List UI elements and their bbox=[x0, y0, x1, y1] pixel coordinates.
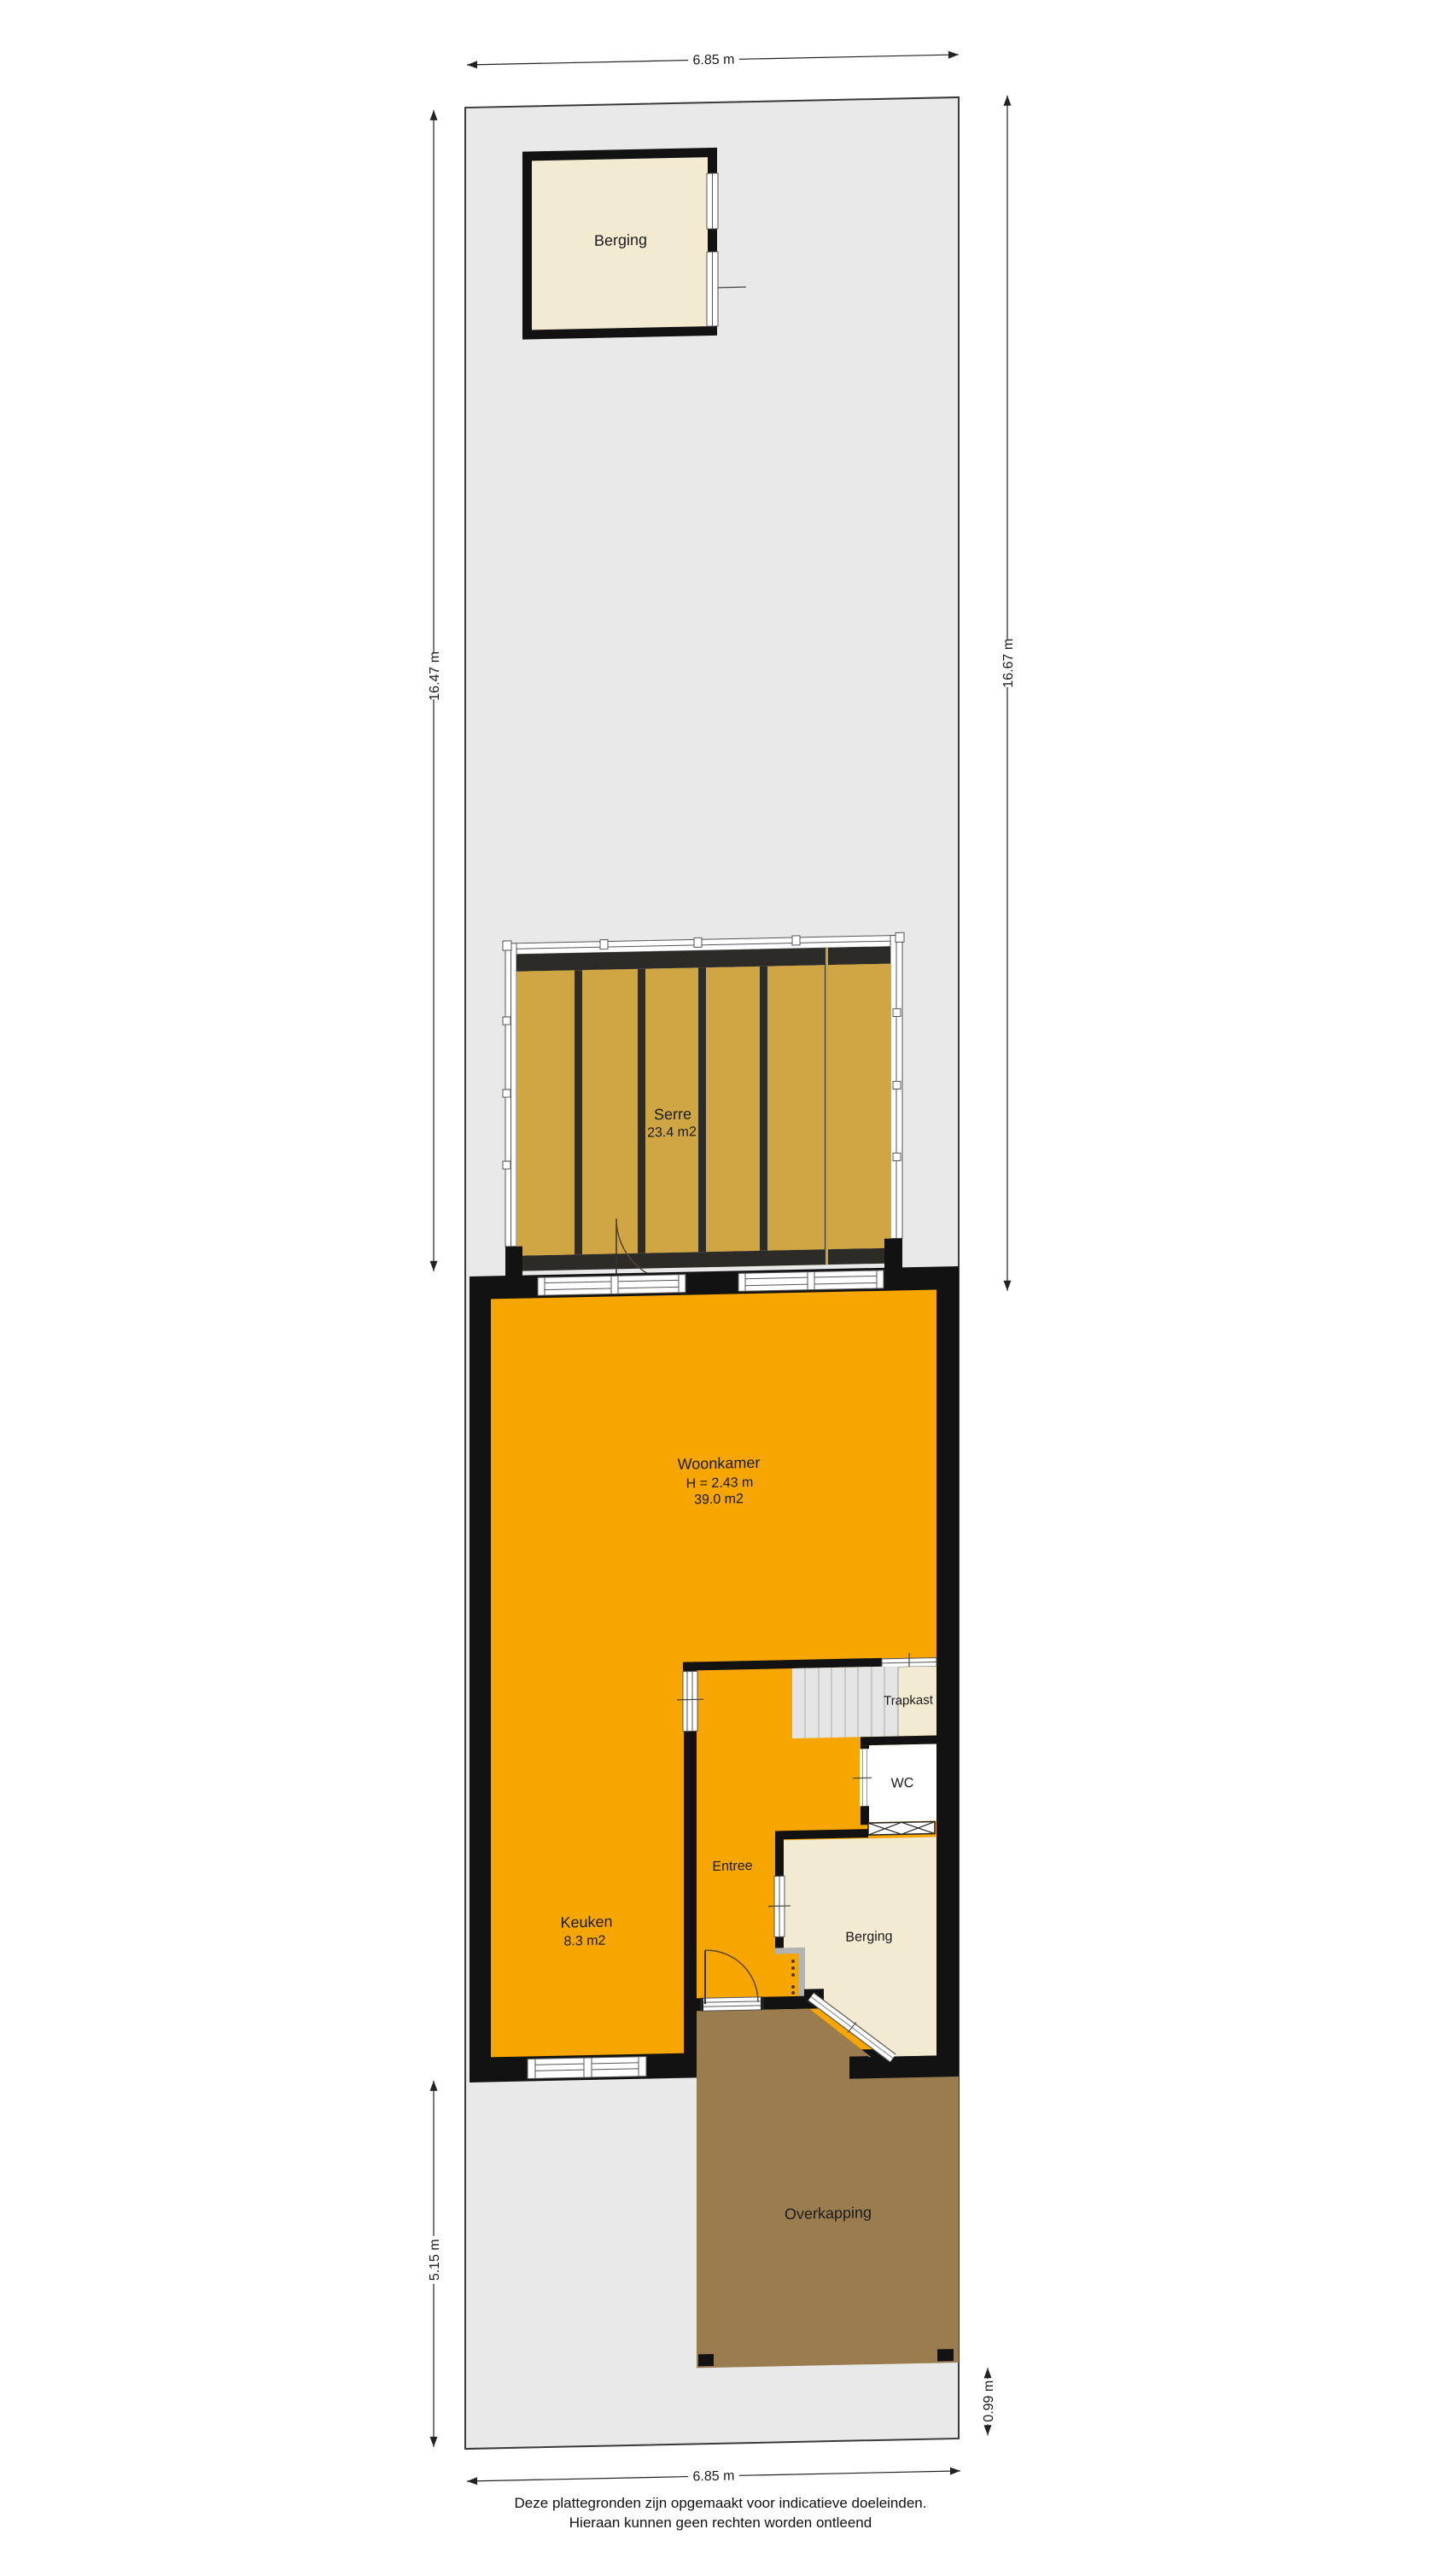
dim-top: 6.85 m bbox=[693, 52, 735, 67]
terrace-post-right bbox=[937, 2349, 954, 2361]
label-serre: Serre bbox=[654, 1106, 691, 1124]
meter-hatch bbox=[868, 1822, 935, 1836]
wc-top-wall bbox=[861, 1735, 936, 1745]
label-keuken-area: 8.3 m2 bbox=[564, 1934, 606, 1949]
serre-post-left bbox=[505, 1247, 522, 1276]
kitchen-window bbox=[528, 2057, 646, 2079]
floor-plan-svg: Berging Serre 23.4 m2 Woonkamer H = 2.43… bbox=[0, 0, 1441, 2576]
shed-door-leaf bbox=[718, 287, 746, 288]
label-overkapping: Overkapping bbox=[785, 2204, 872, 2223]
label-serre-area: 23.4 m2 bbox=[647, 1124, 697, 1140]
disclaimer: Deze plattegronden zijn opgemaakt voor i… bbox=[0, 2493, 1441, 2532]
label-inner-berging: Berging bbox=[845, 1930, 892, 1945]
dim-path: 0.99 m bbox=[982, 2380, 996, 2422]
label-woonkamer: Woonkamer bbox=[678, 1454, 761, 1473]
serre-post-right bbox=[884, 1238, 902, 1268]
dim-right: 16.67 m bbox=[1001, 639, 1016, 688]
terrace-post-left bbox=[698, 2354, 714, 2366]
dim-bottom: 6.85 m bbox=[693, 2468, 735, 2484]
label-wc: WC bbox=[891, 1776, 914, 1791]
dim-left: 16.47 m bbox=[428, 651, 442, 701]
diagonal-post bbox=[849, 2056, 868, 2078]
dim-garden: 5.15 m bbox=[428, 2239, 442, 2281]
label-woonkamer-area: 39.0 m2 bbox=[694, 1492, 744, 1507]
label-trapkast: Trapkast bbox=[884, 1693, 934, 1709]
disclaimer-line2: Hieraan kunnen geen rechten worden ontle… bbox=[0, 2513, 1441, 2532]
serre bbox=[503, 932, 904, 1286]
label-entree: Entree bbox=[712, 1859, 752, 1874]
meter-cabinet bbox=[775, 1948, 805, 2003]
label-garden-shed: Berging bbox=[594, 231, 647, 249]
label-woonkamer-height: H = 2.43 m bbox=[686, 1475, 754, 1492]
serre-divider bbox=[826, 948, 828, 1265]
label-keuken: Keuken bbox=[560, 1913, 612, 1931]
floor-plan: Berging Serre 23.4 m2 Woonkamer H = 2.43… bbox=[0, 0, 1441, 2576]
kitchen-wall-window bbox=[683, 1671, 697, 1731]
disclaimer-line1: Deze plattegronden zijn opgemaakt voor i… bbox=[0, 2493, 1441, 2513]
